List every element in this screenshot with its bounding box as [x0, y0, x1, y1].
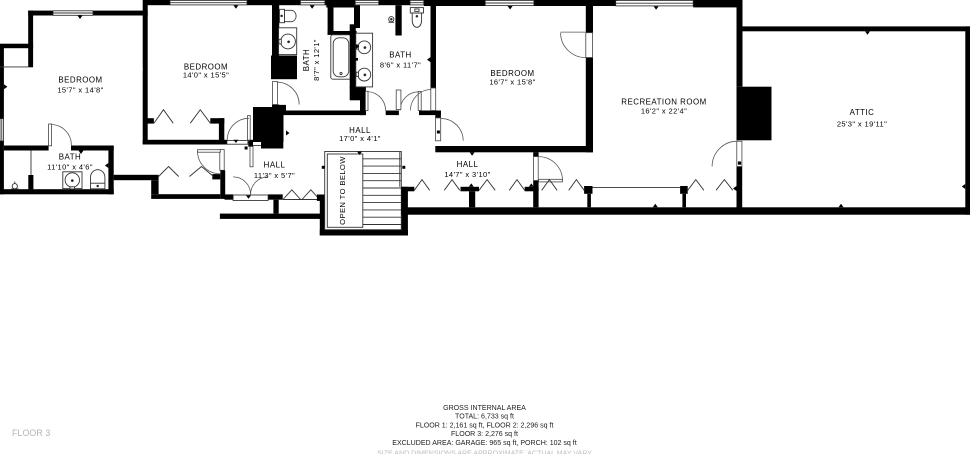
svg-text:25'3" x 19'11": 25'3" x 19'11" [837, 119, 887, 128]
svg-text:16'2" x 22'4": 16'2" x 22'4" [641, 107, 687, 116]
svg-text:HALL: HALL [457, 160, 479, 169]
svg-text:8'6" x 11'7": 8'6" x 11'7" [380, 61, 421, 70]
svg-text:HALL: HALL [264, 160, 286, 169]
svg-text:FLOOR 1: 2,161 sq ft, FLOOR 2:: FLOOR 1: 2,161 sq ft, FLOOR 2: 2,296 sq … [416, 422, 554, 429]
svg-text:RECREATION ROOM: RECREATION ROOM [621, 98, 706, 107]
svg-text:14'7" x 3'10": 14'7" x 3'10" [444, 170, 490, 179]
svg-text:11'3" x 5'7": 11'3" x 5'7" [254, 171, 295, 180]
svg-text:EXCLUDED AREA: GARAGE: 965 sq: EXCLUDED AREA: GARAGE: 965 sq ft, PORCH:… [392, 440, 577, 447]
svg-text:TOTAL: 6,733 sq ft: TOTAL: 6,733 sq ft [455, 414, 514, 421]
svg-text:BATH: BATH [59, 152, 81, 161]
svg-text:14'0" x 15'5": 14'0" x 15'5" [183, 71, 229, 80]
svg-text:OPEN TO BELOW: OPEN TO BELOW [338, 156, 347, 225]
svg-text:BEDROOM: BEDROOM [58, 76, 102, 85]
svg-text:8'7" x 12'1": 8'7" x 12'1" [312, 39, 321, 81]
svg-text:16'7" x 15'8": 16'7" x 15'8" [489, 78, 535, 87]
svg-text:SIZE AND DIMENSIONS ARE APPROX: SIZE AND DIMENSIONS ARE APPROXIMATE, ACT… [377, 450, 592, 454]
svg-text:17'0" x 4'1": 17'0" x 4'1" [339, 134, 381, 143]
svg-text:11'10" x 4'6": 11'10" x 4'6" [47, 163, 93, 172]
svg-text:BATH: BATH [302, 49, 311, 71]
svg-text:ATTIC: ATTIC [850, 108, 875, 117]
svg-text:15'7" x 14'8": 15'7" x 14'8" [57, 85, 103, 94]
svg-text:BATH: BATH [389, 51, 411, 60]
svg-text:FLOOR 3: 2,276 sq ft: FLOOR 3: 2,276 sq ft [451, 431, 518, 438]
svg-text:GROSS INTERNAL AREA: GROSS INTERNAL AREA [443, 405, 526, 412]
svg-text:FLOOR 3: FLOOR 3 [12, 428, 50, 438]
